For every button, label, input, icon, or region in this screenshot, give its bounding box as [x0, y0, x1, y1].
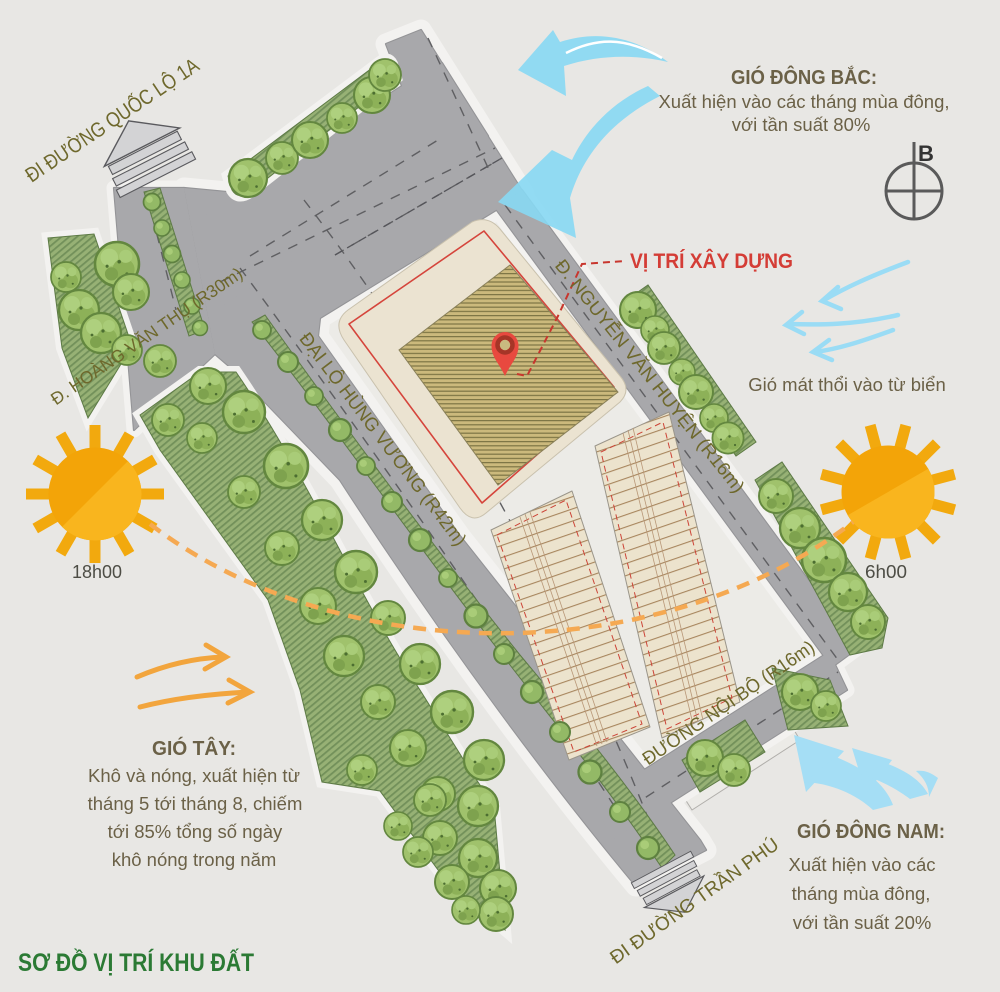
svg-text:B: B — [918, 141, 934, 166]
svg-text:GIÓ ĐÔNG NAM:: GIÓ ĐÔNG NAM: — [797, 819, 945, 843]
svg-text:GIÓ TÂY:: GIÓ TÂY: — [152, 736, 236, 760]
svg-text:Xuất hiện vào các: Xuất hiện vào các — [788, 854, 935, 875]
svg-text:tới 85% tổng số ngày: tới 85% tổng số ngày — [108, 821, 283, 842]
svg-text:với tần suất 80%: với tần suất 80% — [732, 114, 871, 135]
svg-text:tháng 5 tới tháng 8, chiếm: tháng 5 tới tháng 8, chiếm — [88, 793, 303, 814]
svg-text:SƠ ĐỒ VỊ TRÍ KHU ĐẤT: SƠ ĐỒ VỊ TRÍ KHU ĐẤT — [18, 947, 254, 977]
svg-text:Xuất hiện vào các tháng mùa đô: Xuất hiện vào các tháng mùa đông, — [658, 91, 949, 112]
svg-text:khô nóng trong năm: khô nóng trong năm — [112, 849, 277, 870]
svg-text:GIÓ ĐÔNG BẮC:: GIÓ ĐÔNG BẮC: — [731, 65, 877, 89]
svg-text:với tần suất 20%: với tần suất 20% — [793, 912, 932, 933]
svg-text:tháng mùa đông,: tháng mùa đông, — [792, 883, 931, 904]
svg-text:18h00: 18h00 — [72, 562, 122, 582]
svg-text:VỊ TRÍ XÂY DỰNG: VỊ TRÍ XÂY DỰNG — [630, 249, 793, 273]
svg-text:Gió mát thổi vào từ biển: Gió mát thổi vào từ biển — [748, 374, 945, 395]
svg-text:6h00: 6h00 — [865, 562, 907, 582]
svg-text:Khô và nóng, xuất hiện từ: Khô và nóng, xuất hiện từ — [88, 765, 300, 786]
